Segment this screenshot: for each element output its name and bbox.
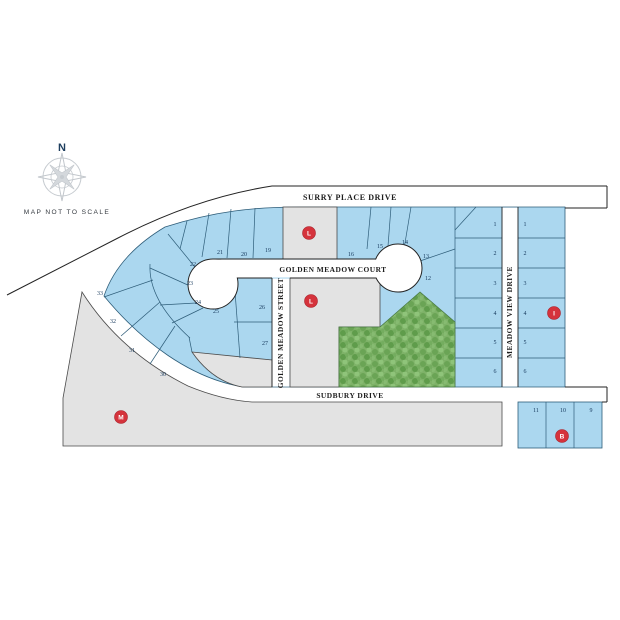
lot-number: 25 bbox=[213, 309, 219, 315]
lot-number: 13 bbox=[423, 254, 429, 260]
lot-number: 32 bbox=[110, 319, 116, 325]
lot-number: 33 bbox=[97, 291, 103, 297]
lot-number: 26 bbox=[259, 305, 265, 311]
marker-label: L bbox=[309, 298, 313, 305]
lot-number: 24 bbox=[195, 300, 201, 306]
marker-label: L bbox=[307, 230, 311, 237]
lot-number: 31 bbox=[129, 348, 135, 354]
marker-label: B bbox=[560, 433, 565, 440]
lot-number: 20 bbox=[241, 252, 247, 258]
site-plan-map: SURRY PLACE DRIVE GOLDEN MEADOW COURT SU… bbox=[0, 0, 620, 620]
lot-number: 1 bbox=[524, 222, 527, 228]
lot-number: 4 bbox=[494, 311, 497, 317]
marker-north-reserved: L bbox=[303, 227, 316, 240]
lot-number: 23 bbox=[187, 281, 193, 287]
street-label-meadow-view-drive: MEADOW VIEW DRIVE bbox=[505, 266, 514, 358]
marker-south-block-lot10: B bbox=[556, 430, 569, 443]
lot-number: 15 bbox=[377, 244, 383, 250]
street-label-surry-place-drive: SURRY PLACE DRIVE bbox=[303, 193, 397, 202]
lot-number: 27 bbox=[262, 341, 268, 347]
marker-label: M bbox=[118, 414, 123, 421]
lot-number: 3 bbox=[524, 281, 527, 287]
marker-west-area: M bbox=[115, 411, 128, 424]
lot-number: 10 bbox=[560, 408, 566, 414]
lot-number: 12 bbox=[425, 276, 431, 282]
lot-number: 4 bbox=[524, 311, 527, 317]
lot-number: 6 bbox=[494, 369, 497, 375]
lot-number: 21 bbox=[217, 250, 223, 256]
lot-number: 2 bbox=[524, 251, 527, 257]
lot-number: 16 bbox=[348, 252, 354, 258]
lot-number: 5 bbox=[494, 340, 497, 346]
lot-number: 2 bbox=[494, 251, 497, 257]
marker-label: I bbox=[553, 310, 555, 317]
lot-number: 19 bbox=[265, 248, 271, 254]
lot-number: 9 bbox=[590, 408, 593, 414]
lot-number: 14 bbox=[402, 240, 408, 246]
street-label-sudbury-drive: SUDBURY DRIVE bbox=[316, 391, 383, 400]
lot-number: 1 bbox=[494, 222, 497, 228]
compass-north-label: N bbox=[58, 142, 66, 154]
lot-number: 22 bbox=[190, 262, 196, 268]
street-label-golden-meadow-street: GOLDEN MEADOW STREET bbox=[276, 278, 285, 388]
marker-meadow-view-lot4: I bbox=[548, 307, 561, 320]
lot-number: 6 bbox=[524, 369, 527, 375]
lot-number: 11 bbox=[533, 408, 539, 414]
lot-number: 30 bbox=[160, 372, 166, 378]
lot-number: 5 bbox=[524, 340, 527, 346]
street-label-golden-meadow-court: GOLDEN MEADOW COURT bbox=[279, 265, 386, 274]
marker-central-reserved: L bbox=[305, 295, 318, 308]
map-scale-note: MAP NOT TO SCALE bbox=[24, 209, 110, 216]
lot-number: 3 bbox=[494, 281, 497, 287]
